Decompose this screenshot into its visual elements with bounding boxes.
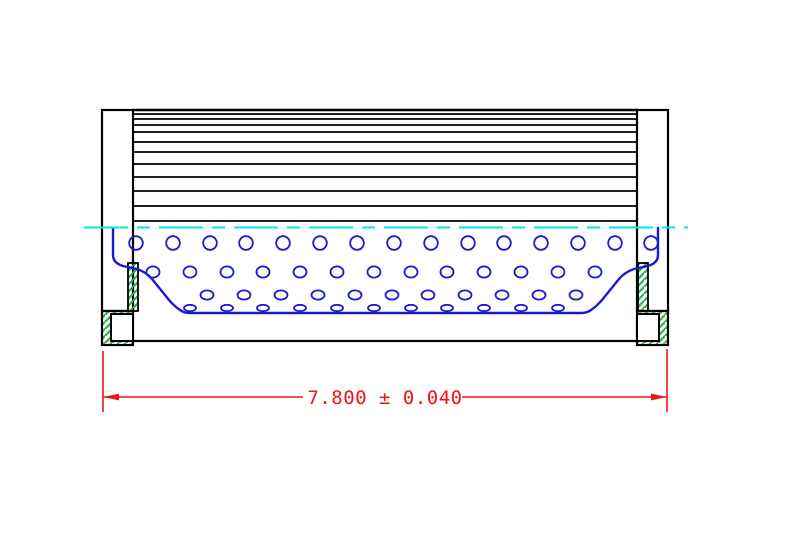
dimension-text: 7.800 ± 0.040 [307,387,462,409]
filter-element-section-drawing: 7.800 ± 0.040 [0,0,789,546]
perforated-core [113,228,658,313]
end-cap-outlines [102,110,668,311]
dimension-annotation: 7.800 ± 0.040 [103,349,667,412]
drawing-page: 7.800 ± 0.040 [0,0,789,546]
section-hatch-areas [102,263,668,345]
